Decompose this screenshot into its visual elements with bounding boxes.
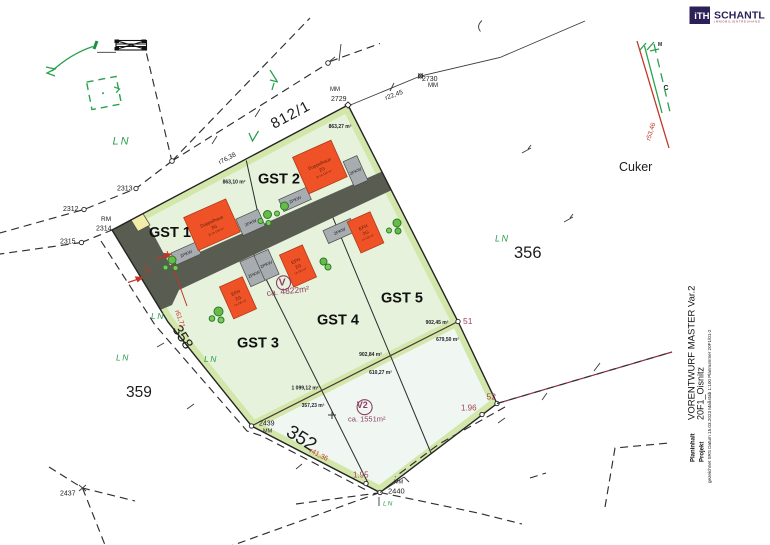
- svg-text:20F1_Oisnitz: 20F1_Oisnitz: [696, 366, 706, 420]
- svg-text:51: 51: [463, 316, 473, 326]
- svg-text:Projekt: Projekt: [700, 442, 706, 462]
- svg-text:Planinhalt: Planinhalt: [691, 433, 697, 462]
- svg-text:MM: MM: [263, 429, 273, 435]
- svg-text:357,23 m²: 357,23 m²: [302, 403, 325, 409]
- svg-text:1 099,12 m²: 1 099,12 m²: [292, 386, 319, 392]
- svg-text:LN: LN: [116, 353, 130, 363]
- svg-text:LN: LN: [151, 311, 165, 321]
- svg-text:1.96: 1.96: [461, 404, 477, 413]
- svg-text:1.95: 1.95: [353, 471, 369, 480]
- svg-text:2730: 2730: [422, 76, 438, 83]
- svg-text:gezeichnet SRS Datum 15.0: gezeichnet SRS Datum 15.03.2023 Maßstab …: [707, 329, 712, 483]
- svg-text:MM: MM: [330, 87, 340, 93]
- svg-text:2315: 2315: [60, 239, 76, 246]
- svg-text:2314: 2314: [96, 226, 112, 233]
- svg-text:LN: LN: [204, 354, 218, 364]
- svg-text:2440: 2440: [388, 487, 405, 496]
- svg-text:GST 1: GST 1: [149, 225, 191, 241]
- svg-text:Cuker: Cuker: [619, 160, 652, 174]
- svg-text:LN: LN: [383, 501, 393, 508]
- svg-text:863,27 m²: 863,27 m²: [329, 124, 352, 130]
- svg-text:902,45 m²: 902,45 m²: [426, 320, 449, 326]
- svg-text:356: 356: [514, 244, 542, 262]
- svg-text:RM: RM: [101, 216, 111, 223]
- svg-text:2439: 2439: [259, 421, 275, 428]
- svg-text:LN: LN: [495, 234, 510, 244]
- svg-text:359: 359: [126, 384, 152, 401]
- svg-text:2437: 2437: [60, 491, 76, 498]
- svg-text:LN: LN: [113, 136, 131, 148]
- svg-text:V2: V2: [357, 400, 368, 410]
- svg-text:679,50 m²: 679,50 m²: [436, 337, 459, 343]
- svg-text:MM: MM: [394, 480, 404, 486]
- svg-text:MM: MM: [428, 83, 438, 89]
- svg-text:610,27 m²: 610,27 m²: [369, 370, 392, 376]
- svg-text:52: 52: [487, 392, 497, 402]
- svg-text:902,84 m²: 902,84 m²: [359, 352, 382, 358]
- svg-text:2729: 2729: [331, 96, 347, 103]
- svg-text:GST 2: GST 2: [258, 172, 300, 188]
- svg-text:2313: 2313: [117, 186, 133, 193]
- svg-text:2312: 2312: [63, 206, 79, 213]
- svg-text:iTH: iTH: [694, 11, 709, 22]
- svg-text:ca. 1551m²: ca. 1551m²: [348, 415, 386, 424]
- svg-text:GST 3: GST 3: [237, 336, 279, 352]
- svg-text:GST 5: GST 5: [381, 291, 423, 307]
- svg-text:IMMOBILIENTREUHAND: IMMOBILIENTREUHAND: [715, 19, 761, 23]
- svg-text:863,10 m²: 863,10 m²: [223, 180, 246, 186]
- svg-text:M: M: [658, 42, 662, 48]
- svg-text:GST 4: GST 4: [317, 313, 359, 329]
